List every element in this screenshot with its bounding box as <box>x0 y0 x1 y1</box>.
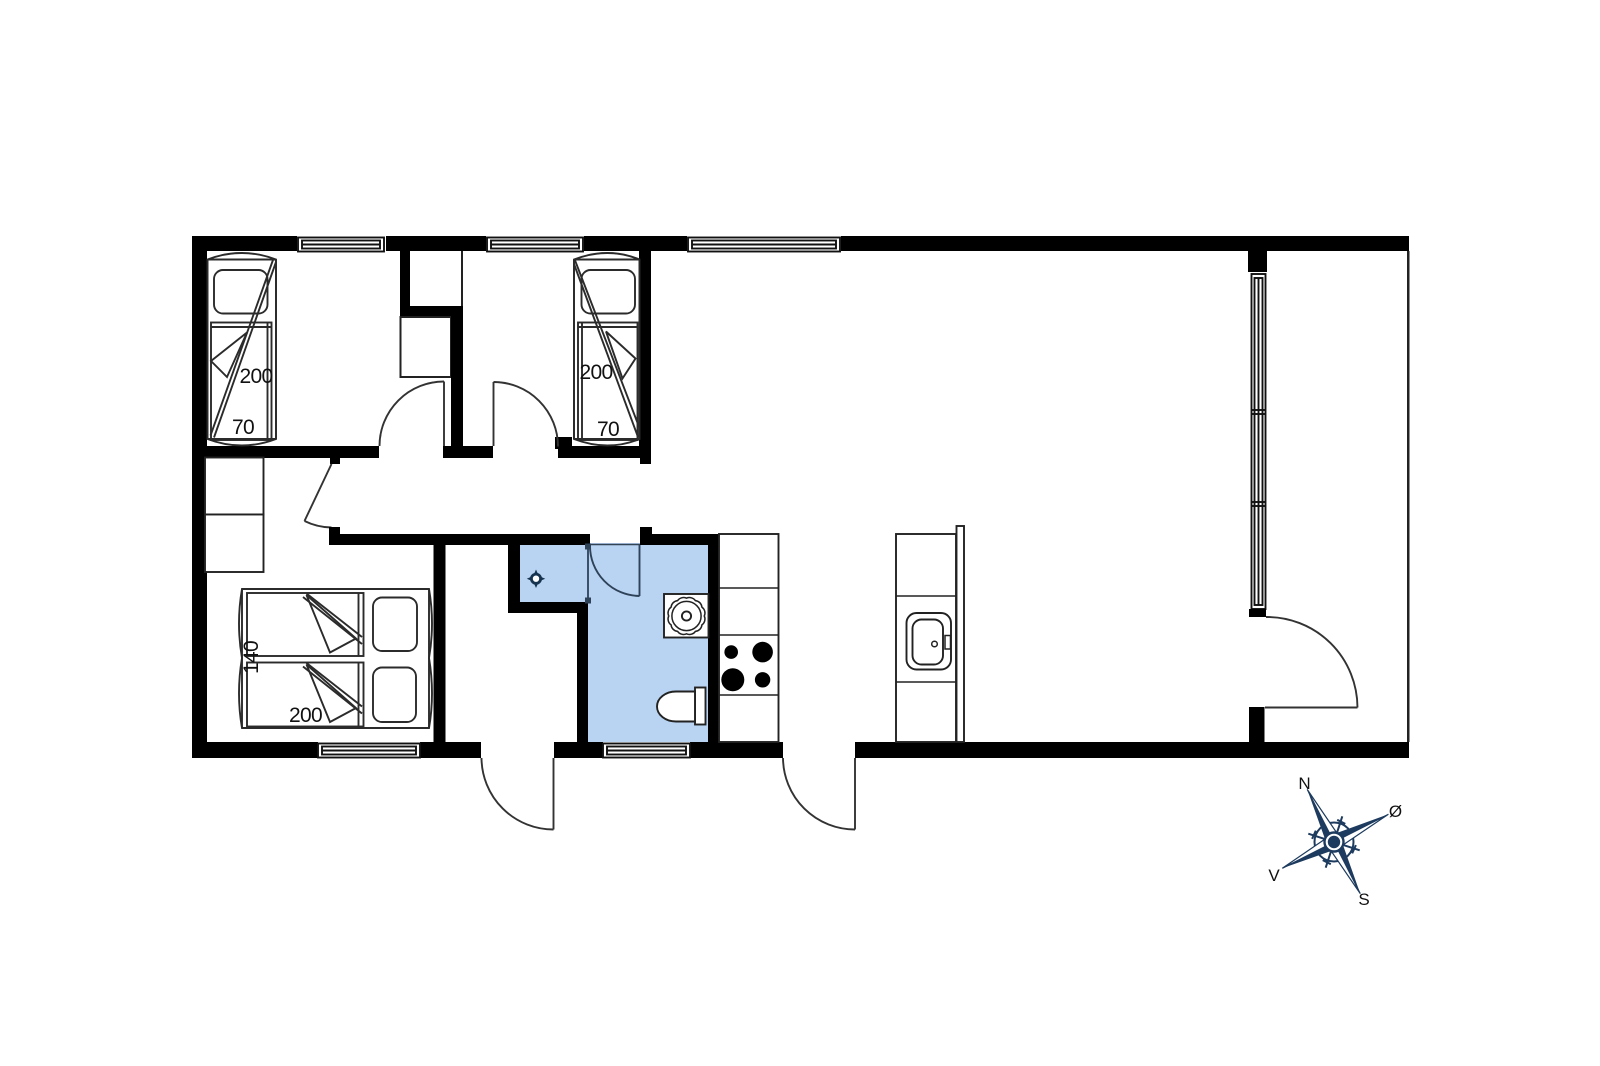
svg-text:200: 200 <box>289 704 322 727</box>
svg-text:70: 70 <box>597 418 619 441</box>
svg-text:200: 200 <box>240 365 273 388</box>
svg-text:V: V <box>1268 866 1280 885</box>
svg-text:140: 140 <box>240 641 263 674</box>
svg-text:N: N <box>1298 774 1310 793</box>
svg-text:200: 200 <box>580 361 613 384</box>
svg-text:S: S <box>1358 890 1369 909</box>
svg-text:Ø: Ø <box>1389 802 1402 821</box>
svg-text:70: 70 <box>232 416 254 439</box>
